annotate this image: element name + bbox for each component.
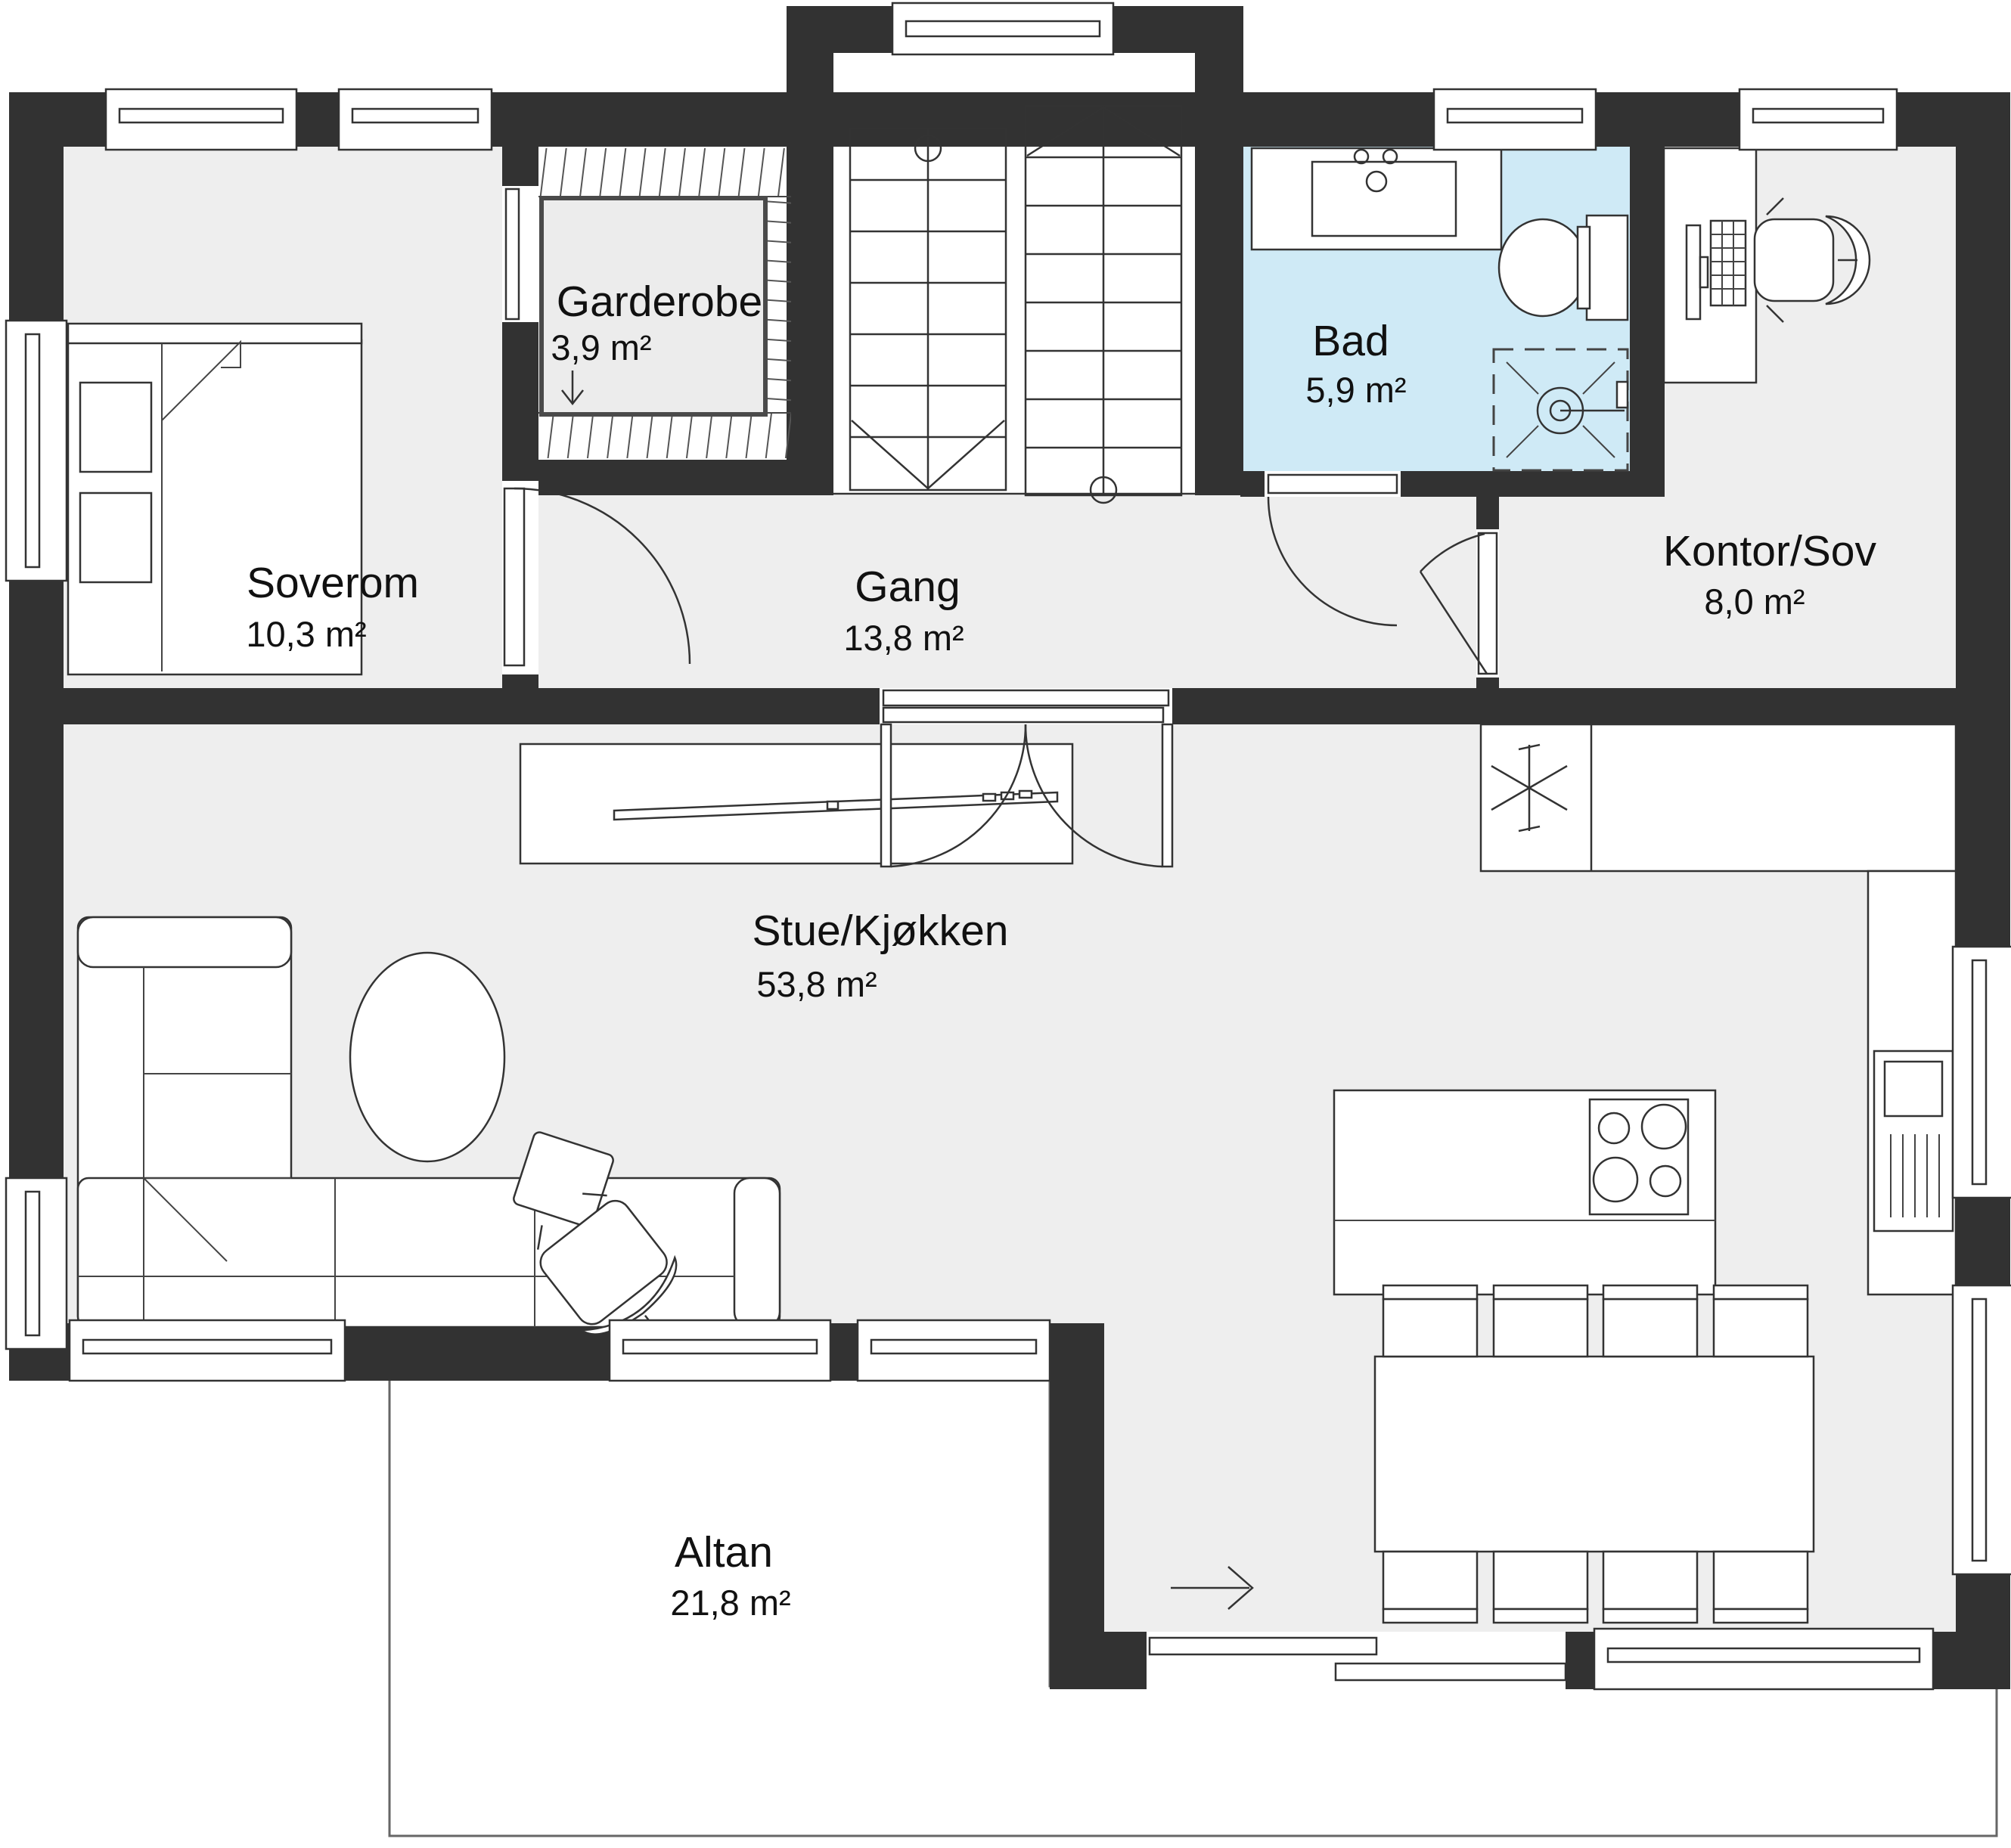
tv-stand <box>827 802 838 809</box>
window <box>1739 89 1897 150</box>
toilet <box>1499 215 1628 320</box>
window <box>1953 947 2011 1198</box>
pillow <box>80 383 151 472</box>
room-label-garderobe: Garderobe <box>557 278 763 326</box>
dining-chair <box>1494 1552 1587 1623</box>
window <box>1953 1285 2011 1574</box>
window <box>1594 1629 1933 1689</box>
window <box>6 1178 67 1349</box>
keyboard <box>1711 221 1746 305</box>
tv-bench <box>520 744 1072 864</box>
sofa-armrest <box>734 1178 780 1327</box>
desk <box>1664 148 1756 383</box>
sofa-armrest <box>78 917 291 967</box>
shower-fixture <box>1617 382 1628 408</box>
window <box>6 321 67 581</box>
room-label-stue: Stue/Kjøkken <box>753 907 1009 955</box>
pillow <box>80 493 151 582</box>
dining-table <box>1375 1357 1814 1552</box>
oven <box>1874 1051 1953 1231</box>
room-label-gang: Gang <box>855 563 960 611</box>
dining-chair <box>1603 1285 1697 1357</box>
room-label-bad: Bad <box>1312 317 1389 365</box>
room-area-stue: 53,8 m² <box>756 964 877 1004</box>
bathroom-vanity <box>1252 148 1501 250</box>
room-area-altan: 21,8 m² <box>670 1583 790 1623</box>
window <box>892 3 1113 54</box>
window <box>106 89 296 150</box>
dining-chair <box>1383 1552 1477 1623</box>
dining-chair <box>1494 1285 1587 1357</box>
kitchen-island <box>1334 1090 1715 1295</box>
toilet-bowl <box>1499 219 1587 316</box>
dining-chair <box>1714 1285 1808 1357</box>
window <box>70 1320 345 1381</box>
window <box>1434 89 1596 150</box>
room-area-gang: 13,8 m² <box>843 618 964 658</box>
toilet-tank <box>1587 215 1628 320</box>
dining-chair <box>1714 1552 1808 1623</box>
room-area-garderobe: 3,9 m² <box>551 327 651 367</box>
window <box>858 1320 1050 1381</box>
window <box>339 89 492 150</box>
room-label-kontor: Kontor/Sov <box>1663 527 1876 575</box>
sink <box>1312 162 1456 236</box>
headboard <box>68 324 362 343</box>
window <box>610 1320 830 1381</box>
floor-plan: Soverom 10,3 m² Garderobe 3,9 m² Gang 13… <box>0 0 2011 1848</box>
room-area-kontor: 8,0 m² <box>1704 581 1805 622</box>
monitor <box>1687 225 1700 319</box>
room-label-altan: Altan <box>675 1528 773 1577</box>
kitchen-counter-top <box>1481 724 1956 871</box>
monitor-stand <box>1700 257 1708 287</box>
dining-chair <box>1383 1285 1477 1357</box>
room-area-bad: 5,9 m² <box>1305 370 1406 410</box>
room-area-soverom: 10,3 m² <box>246 614 366 654</box>
room-label-soverom: Soverom <box>247 559 419 607</box>
coffee-table <box>350 953 504 1161</box>
dining-chair <box>1603 1552 1697 1623</box>
garderobe-opening <box>502 186 538 322</box>
